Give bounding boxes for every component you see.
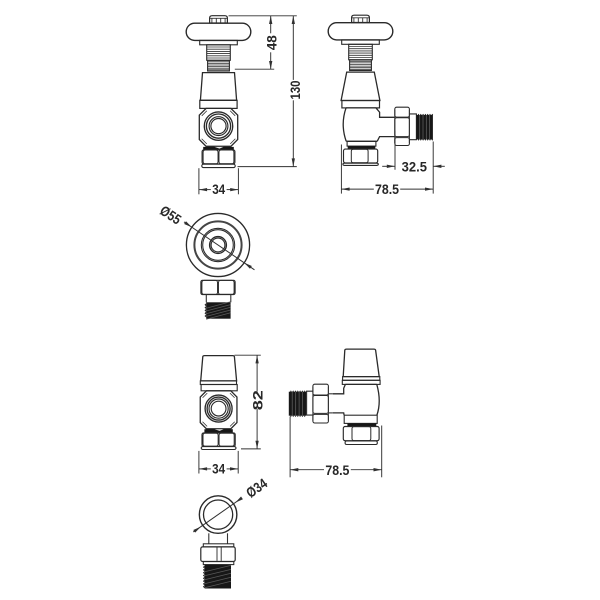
svg-text:48: 48: [263, 35, 279, 50]
svg-text:78.5: 78.5: [375, 181, 399, 197]
svg-text:130: 130: [287, 80, 303, 99]
svg-text:78.5: 78.5: [325, 462, 349, 478]
svg-text:82: 82: [249, 390, 265, 410]
svg-text:34: 34: [212, 460, 225, 476]
svg-text:34: 34: [212, 181, 225, 197]
svg-text:32.5: 32.5: [402, 158, 427, 174]
